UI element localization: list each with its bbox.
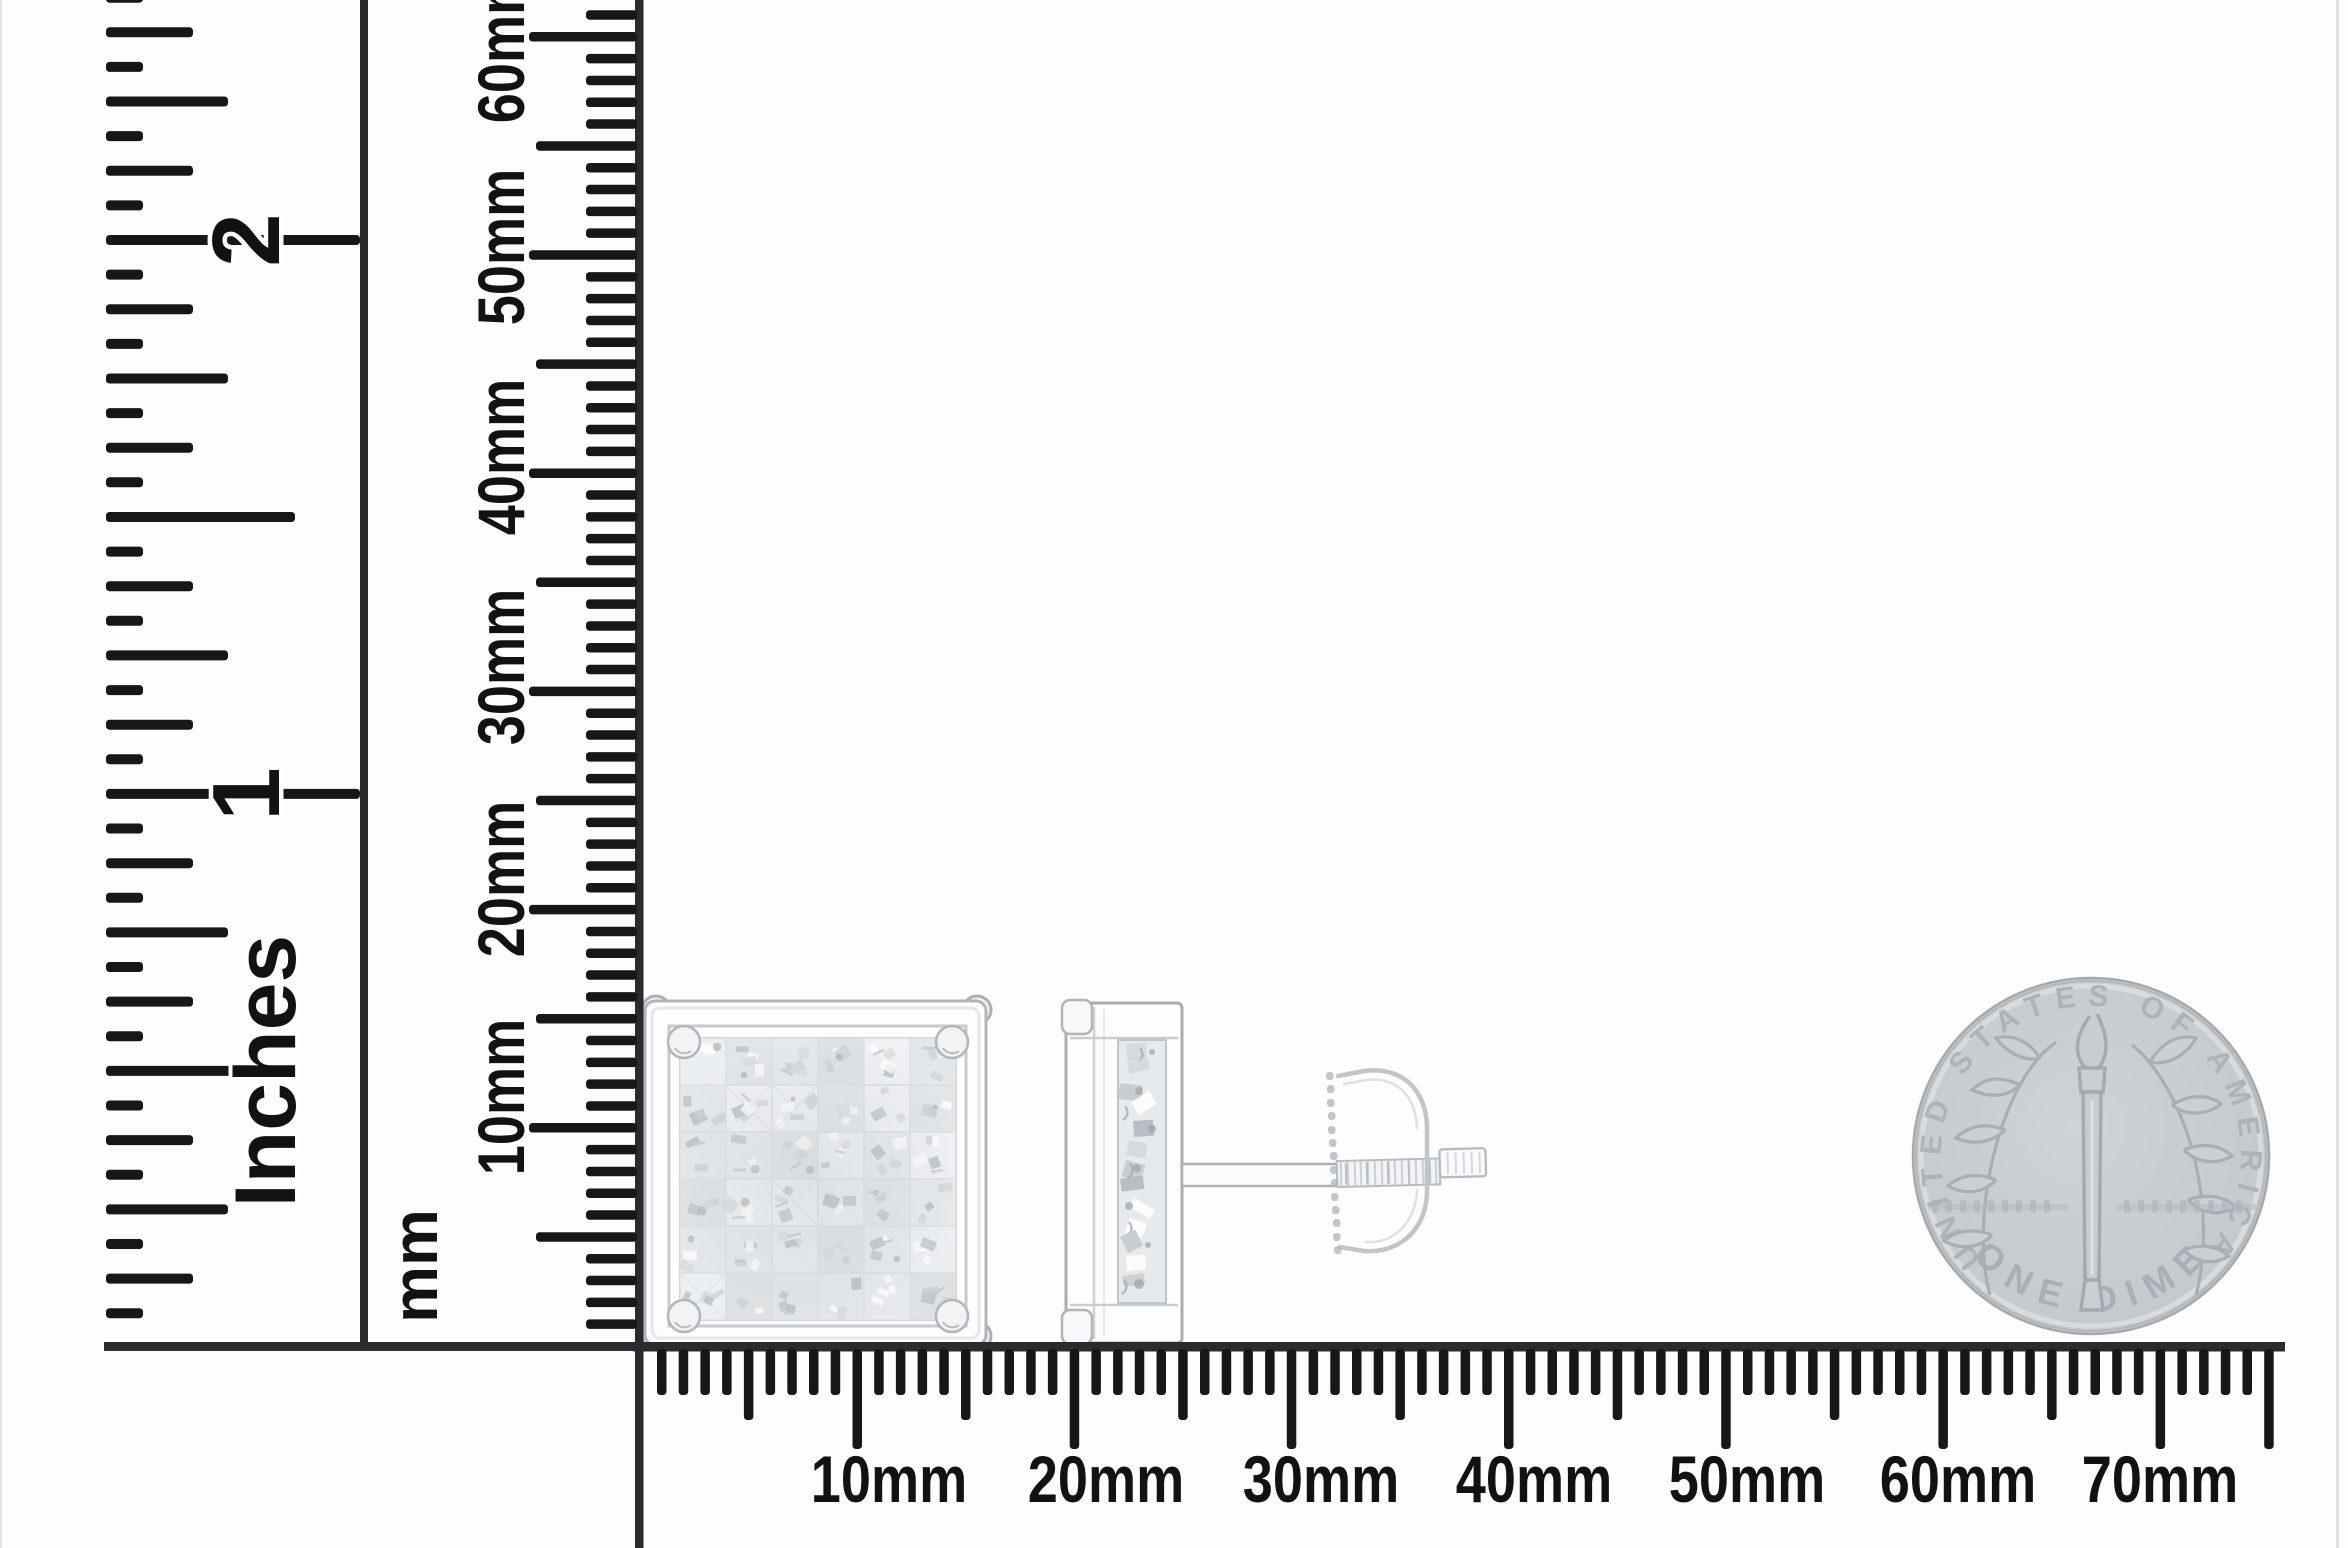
- svg-text:40mm: 40mm: [464, 379, 538, 535]
- svg-text:20mm: 20mm: [1028, 1442, 1184, 1516]
- svg-text:50mm: 50mm: [1669, 1442, 1825, 1516]
- svg-text:10mm: 10mm: [464, 1019, 538, 1175]
- svg-text:40mm: 40mm: [1456, 1442, 1612, 1516]
- svg-text:70mm: 70mm: [2082, 1442, 2238, 1516]
- svg-text:1: 1: [193, 767, 300, 820]
- svg-text:mm: mm: [379, 1209, 451, 1323]
- svg-text:20mm: 20mm: [464, 801, 538, 957]
- svg-text:30mm: 30mm: [1243, 1442, 1399, 1516]
- svg-text:30mm: 30mm: [464, 589, 538, 745]
- svg-text:Inches: Inches: [218, 935, 314, 1207]
- svg-text:10mm: 10mm: [811, 1442, 967, 1516]
- svg-text:60mm: 60mm: [464, 0, 538, 123]
- svg-text:2: 2: [193, 213, 300, 266]
- svg-text:50mm: 50mm: [464, 169, 538, 325]
- svg-text:60mm: 60mm: [1880, 1442, 2036, 1516]
